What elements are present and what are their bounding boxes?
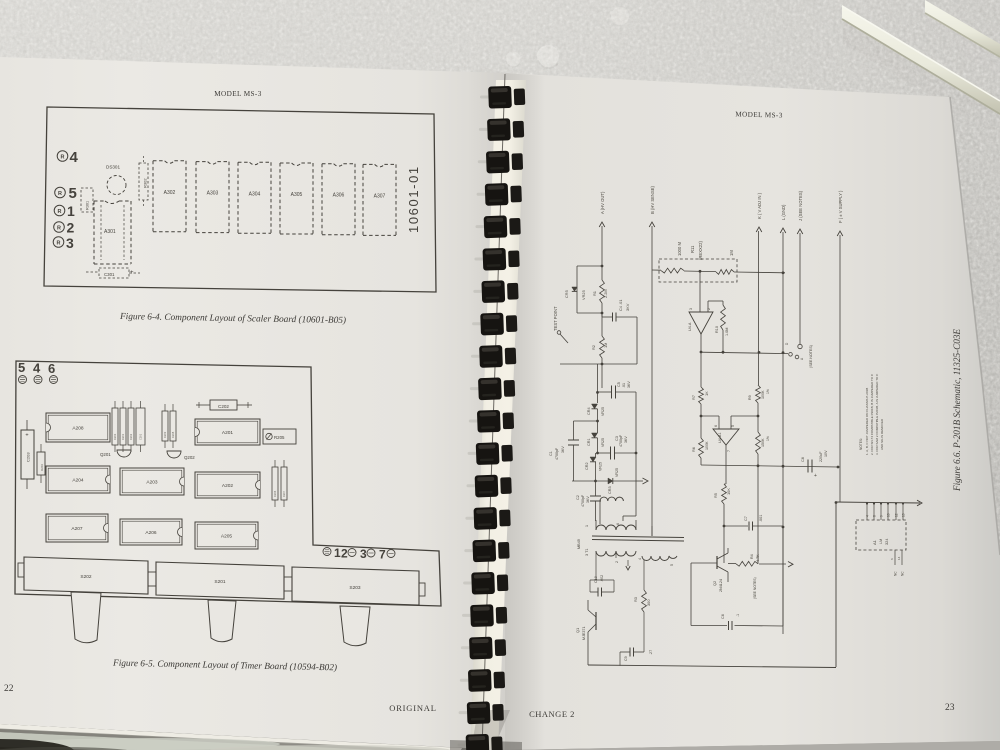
svg-text:U4.B1: U4.B1 [718, 432, 722, 443]
svg-text:A1: A1 [872, 540, 877, 545]
svg-text:.01: .01 [622, 383, 626, 388]
svg-text:324: 324 [884, 538, 889, 545]
svg-text:6: 6 [714, 425, 718, 427]
svg-text:A304: A304 [249, 191, 261, 197]
svg-text:1. A, B, C NOT JUMPERED ON CHA: 1. A, B, C NOT JUMPERED ON CHASSIS P-201… [865, 388, 869, 455]
svg-text:R: R [58, 191, 62, 197]
svg-text:3KV: 3KV [627, 381, 631, 388]
svg-text:R201: R201 [121, 433, 125, 440]
svg-text:A205: A205 [221, 534, 233, 540]
svg-text:MODEL MS-3: MODEL MS-3 [735, 110, 783, 119]
svg-text:Q2: Q2 [712, 581, 717, 586]
svg-text:CR5: CR5 [564, 290, 569, 298]
svg-text:R208: R208 [171, 431, 175, 438]
svg-text:5: 5 [731, 425, 735, 427]
svg-text:2: 2 [341, 547, 348, 561]
svg-text:DS301: DS301 [106, 165, 120, 170]
svg-text:R207: R207 [282, 490, 286, 497]
svg-text:10: 10 [887, 513, 891, 517]
svg-text:A (HV OUT): A (HV OUT) [600, 191, 605, 214]
svg-text:C2: C2 [576, 495, 580, 500]
svg-text:NC: NC [894, 571, 898, 576]
svg-text:MJE371: MJE371 [582, 626, 586, 640]
svg-text:3KV: 3KV [586, 496, 590, 503]
svg-text:NC: NC [901, 571, 905, 576]
svg-text:VR25: VR25 [599, 462, 603, 471]
svg-text:J (SEE NOTES): J (SEE NOTES) [798, 190, 803, 221]
svg-text:R301: R301 [86, 201, 90, 210]
svg-text:R3: R3 [633, 597, 638, 602]
svg-text:CR3: CR3 [608, 486, 612, 494]
svg-text:7: 7 [379, 548, 386, 562]
svg-text:10K: 10K [726, 488, 731, 495]
svg-text:A203: A203 [146, 480, 158, 486]
svg-text:23: 23 [945, 703, 955, 713]
svg-text:R1: R1 [592, 291, 597, 296]
svg-text:R302: R302 [143, 178, 148, 188]
svg-text:1%: 1% [766, 436, 770, 441]
svg-text:L (GND): L (GND) [781, 204, 786, 220]
svg-text:A301: A301 [104, 229, 116, 235]
svg-text:A306: A306 [333, 193, 345, 199]
svg-text:TEST POINT: TEST POINT [553, 306, 558, 331]
svg-text:A206: A206 [145, 530, 157, 536]
svg-text:Q1: Q1 [575, 628, 580, 633]
svg-text:4: 4 [866, 515, 870, 517]
svg-text:1000 M: 1000 M [677, 242, 682, 256]
svg-text:VR25: VR25 [601, 407, 605, 416]
svg-text:7: 7 [727, 450, 731, 452]
svg-text:100K: 100K [761, 390, 765, 399]
svg-text:B (HV SENSE): B (HV SENSE) [650, 185, 655, 214]
svg-text:Q201: Q201 [100, 452, 111, 457]
svg-text:3KV: 3KV [625, 303, 630, 311]
svg-text:MODEL MS-3: MODEL MS-3 [214, 90, 261, 98]
svg-text:4: 4 [638, 558, 642, 560]
svg-text:R5: R5 [713, 493, 718, 498]
svg-text:U4.A: U4.A [688, 322, 692, 331]
svg-text:1: 1 [67, 203, 75, 219]
svg-text:R2: R2 [591, 345, 596, 350]
svg-text:S202: S202 [80, 574, 92, 580]
svg-text:S201: S201 [214, 579, 226, 585]
svg-text:1: 1 [334, 546, 341, 560]
svg-text:R: R [57, 241, 61, 247]
svg-text:C9: C9 [624, 656, 628, 661]
svg-text:S203: S203 [349, 585, 361, 591]
svg-text:4.7K: 4.7K [756, 554, 760, 562]
svg-text:R203: R203 [113, 433, 117, 440]
svg-text:.27: .27 [649, 650, 653, 655]
svg-text:.002: .002 [600, 575, 604, 582]
svg-text:R11: R11 [690, 245, 695, 253]
svg-text:3KV: 3KV [624, 436, 628, 443]
svg-text:4700pF: 4700pF [581, 494, 585, 507]
svg-text:C4 .01: C4 .01 [618, 300, 623, 311]
svg-text:R206: R206 [273, 490, 277, 497]
svg-text:C1: C1 [549, 451, 553, 456]
svg-text:A303: A303 [207, 191, 219, 197]
svg-text:4700pF: 4700pF [555, 447, 559, 460]
svg-text:4: 4 [33, 361, 41, 376]
svg-text:R10: R10 [715, 326, 719, 333]
svg-text:R209: R209 [163, 431, 167, 438]
svg-text:4: 4 [70, 149, 79, 166]
svg-text:R: R [57, 226, 61, 232]
svg-text:1.0M: 1.0M [725, 328, 729, 336]
svg-text:Q202: Q202 [184, 455, 195, 460]
svg-text:1%: 1% [766, 389, 770, 394]
svg-text:2.2M: 2.2M [603, 289, 608, 298]
svg-text:A207: A207 [71, 526, 83, 532]
svg-text:CR1: CR1 [587, 438, 591, 446]
svg-text:3. FOR SAM 2 COMPATIBLE P201B: 3. FOR SAM 2 COMPATIBLE P201B, A IS JUMP… [875, 373, 879, 455]
svg-text:R6: R6 [691, 447, 696, 452]
svg-text:R202: R202 [129, 433, 133, 440]
svg-text:2. FOR SN-74 COMPATIBLE P201B: 2. FOR SN-74 COMPATIBLE P201B, B IS JUMP… [870, 373, 874, 455]
svg-text:3: 3 [66, 235, 74, 251]
svg-text:R4: R4 [750, 554, 754, 559]
svg-text:2N4124: 2N4124 [719, 579, 723, 592]
svg-text:3KV: 3KV [561, 446, 565, 453]
svg-text:+: + [814, 473, 817, 479]
svg-text:1M: 1M [603, 343, 608, 348]
svg-text:C202: C202 [218, 404, 229, 409]
svg-text:14: 14 [897, 556, 901, 560]
svg-text:C203: C203 [26, 452, 31, 462]
svg-text:150K: 150K [761, 438, 765, 447]
svg-text:5: 5 [69, 185, 77, 202]
svg-text:4700pF: 4700pF [619, 434, 623, 447]
svg-text:.001: .001 [759, 515, 763, 522]
svg-text:(SEE NOTES): (SEE NOTES) [809, 345, 813, 368]
svg-text:CHANGE 2: CHANGE 2 [529, 709, 575, 719]
svg-text:C6: C6 [721, 614, 725, 619]
svg-text:VR25: VR25 [581, 290, 586, 300]
svg-text:VR25: VR25 [601, 438, 605, 447]
svg-text:A305: A305 [291, 192, 303, 198]
svg-text:2: 2 [67, 220, 75, 236]
svg-text:CR2: CR2 [585, 462, 589, 470]
svg-text:1K: 1K [704, 391, 709, 396]
svg-text:R204: R204 [40, 464, 44, 471]
svg-text:A202: A202 [222, 483, 234, 489]
svg-text:10V: 10V [824, 450, 828, 457]
svg-text:A201: A201 [222, 430, 234, 436]
svg-text:6: 6 [48, 361, 55, 376]
svg-text:5: 5 [670, 564, 674, 566]
svg-text:12: 12 [895, 513, 899, 517]
svg-text:5: 5 [18, 360, 25, 375]
svg-text:C5: C5 [617, 382, 621, 387]
svg-text:VR25: VR25 [615, 468, 619, 477]
svg-text:MB49: MB49 [577, 539, 581, 549]
svg-text:13: 13 [902, 513, 906, 517]
svg-text:9: 9 [880, 515, 884, 517]
svg-text:A204: A204 [72, 478, 84, 484]
svg-text:3: 3 [360, 547, 367, 561]
svg-text:K ( V ADJ IN ): K ( V ADJ IN ) [757, 192, 762, 219]
svg-text:Figure 6.6. P-201B Schematic,: Figure 6.6. P-201B Schematic, 11325-C03E [952, 329, 962, 492]
svg-text:3: 3 [689, 308, 693, 310]
svg-text:10601-01: 10601-01 [406, 165, 421, 233]
svg-text:8: 8 [873, 515, 877, 517]
svg-text:R7: R7 [691, 395, 696, 400]
svg-text:CR4: CR4 [587, 407, 591, 415]
svg-text:ORIGINAL: ORIGINAL [389, 703, 436, 713]
svg-text:22: 22 [4, 684, 14, 694]
svg-text:A307: A307 [374, 193, 386, 199]
svg-text:C201: C201 [139, 433, 143, 440]
svg-text:NOTES:: NOTES: [859, 438, 863, 450]
svg-text:300: 300 [646, 599, 651, 606]
svg-text:C301: C301 [104, 272, 115, 277]
svg-text:AND SG IS REMOVED: AND SG IS REMOVED [880, 418, 884, 450]
svg-text:R9: R9 [748, 395, 752, 400]
svg-text:A208: A208 [72, 426, 84, 432]
svg-text:1M: 1M [729, 250, 734, 256]
svg-text:R: R [58, 209, 62, 215]
svg-text:C8: C8 [801, 457, 805, 462]
svg-text:6: 6 [616, 523, 620, 525]
svg-text:C7: C7 [744, 516, 748, 521]
svg-text:3 T1: 3 T1 [585, 548, 589, 556]
svg-text:+: + [25, 433, 28, 439]
svg-text:2: 2 [615, 561, 619, 563]
svg-text:A302: A302 [164, 190, 176, 196]
svg-text:(SEE NOTES): (SEE NOTES) [753, 577, 757, 599]
svg-text:100K: 100K [705, 441, 709, 450]
svg-text:F ( ± V SUPPLY ): F ( ± V SUPPLY ) [838, 190, 843, 223]
svg-text:220uF: 220uF [819, 451, 823, 462]
svg-text:(REXX22): (REXX22) [698, 241, 703, 260]
svg-text:.1: .1 [736, 614, 740, 617]
svg-text:LM: LM [878, 539, 883, 544]
svg-text:1: 1 [585, 525, 589, 527]
svg-text:R: R [61, 155, 65, 161]
svg-text:R205: R205 [274, 435, 285, 440]
